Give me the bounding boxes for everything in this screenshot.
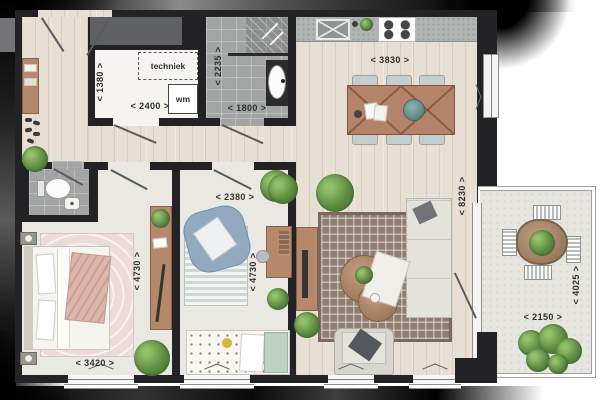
techniek-zone: techniek xyxy=(138,52,198,80)
dim-bathroom-height: < 2235 > xyxy=(212,36,224,96)
bed-pillow xyxy=(36,253,57,294)
window xyxy=(184,375,250,383)
bed-blanket xyxy=(65,252,112,324)
window xyxy=(413,375,457,383)
shoes xyxy=(25,118,32,122)
dim-bathroom-width: < 1800 > xyxy=(217,102,277,114)
dim-bedroom1-height: < 4730 > xyxy=(131,241,143,301)
stove xyxy=(378,17,416,42)
bed-single-headboard xyxy=(264,332,288,373)
wall-step-bottom-right-a xyxy=(477,332,497,383)
bed-pillow xyxy=(36,299,57,340)
bed-throw xyxy=(222,338,232,348)
window-sill xyxy=(180,384,254,389)
plant xyxy=(529,230,555,256)
nightstand-speaker xyxy=(20,352,37,365)
dim-techniek-height: < 1380 > xyxy=(94,52,106,112)
balcony-chair xyxy=(524,265,552,280)
dim-living-height: < 8230 > xyxy=(456,166,468,226)
dim-kitchen-width: < 3830 > xyxy=(360,54,420,66)
plant xyxy=(360,18,373,31)
dim-bedroom1-width: < 3420 > xyxy=(65,357,125,369)
dim-techniek-width: < 2400 > xyxy=(120,100,180,112)
desk-drawers xyxy=(279,231,289,255)
window-opening-mark xyxy=(339,362,363,372)
wc-sink xyxy=(64,197,80,210)
dim-balcony-width: < 2150 > xyxy=(513,311,573,323)
window xyxy=(328,375,374,383)
plant xyxy=(526,348,550,372)
window-sill xyxy=(64,384,138,389)
installation-shaft xyxy=(90,17,182,45)
plant xyxy=(134,340,170,376)
window xyxy=(68,375,134,383)
techniek-label: techniek xyxy=(151,61,186,71)
table-book xyxy=(373,104,388,121)
toilet-tank xyxy=(37,180,45,197)
wall-step-bottom-right-b xyxy=(455,358,477,383)
shower xyxy=(246,17,288,55)
window-sill xyxy=(324,384,378,389)
dining-table xyxy=(347,85,455,135)
techniek-door-opening xyxy=(113,118,159,126)
room-corridor xyxy=(88,126,296,162)
shower-glass xyxy=(228,53,288,56)
dim-bedroom2-height: < 4730 > xyxy=(247,242,259,302)
dim-bedroom2-width: < 2380 > xyxy=(205,191,265,203)
window xyxy=(483,54,499,118)
plant xyxy=(316,174,354,212)
window-opening-mark xyxy=(423,362,447,372)
balcony-chair xyxy=(533,205,561,220)
bedroom2-door-opening xyxy=(212,162,254,171)
coffee-table-tray xyxy=(370,293,380,303)
table-bowl xyxy=(403,99,425,121)
plant xyxy=(294,312,320,338)
sideboard-paper xyxy=(153,237,168,248)
towel xyxy=(24,64,37,72)
bathroom-door-opening xyxy=(220,118,264,126)
dim-balcony-height: < 4025 > xyxy=(570,255,582,315)
plant xyxy=(22,146,48,172)
towel xyxy=(24,78,37,86)
plant xyxy=(548,354,568,374)
plant xyxy=(267,288,289,310)
balcony-chair xyxy=(502,229,517,256)
shoes xyxy=(33,132,40,136)
kitchen-sink xyxy=(316,19,350,40)
kitchen-faucet xyxy=(352,21,358,27)
plant xyxy=(355,266,373,284)
bed-headboard xyxy=(24,246,33,350)
plant xyxy=(151,209,170,228)
toilet xyxy=(45,178,71,199)
bedroom1-door-opening xyxy=(108,162,150,171)
window-opening-mark xyxy=(205,362,229,372)
floor-plan: techniek wm xyxy=(0,0,600,400)
window-sill xyxy=(409,384,461,389)
bathroom-faucet xyxy=(281,79,285,83)
table-plate xyxy=(354,110,362,118)
nightstand-speaker xyxy=(20,232,37,245)
window-opening-mark xyxy=(473,85,483,109)
bed-single-pillow xyxy=(239,333,265,372)
entrance-door-opening xyxy=(38,10,112,17)
tv xyxy=(302,250,308,298)
plant xyxy=(268,174,298,204)
